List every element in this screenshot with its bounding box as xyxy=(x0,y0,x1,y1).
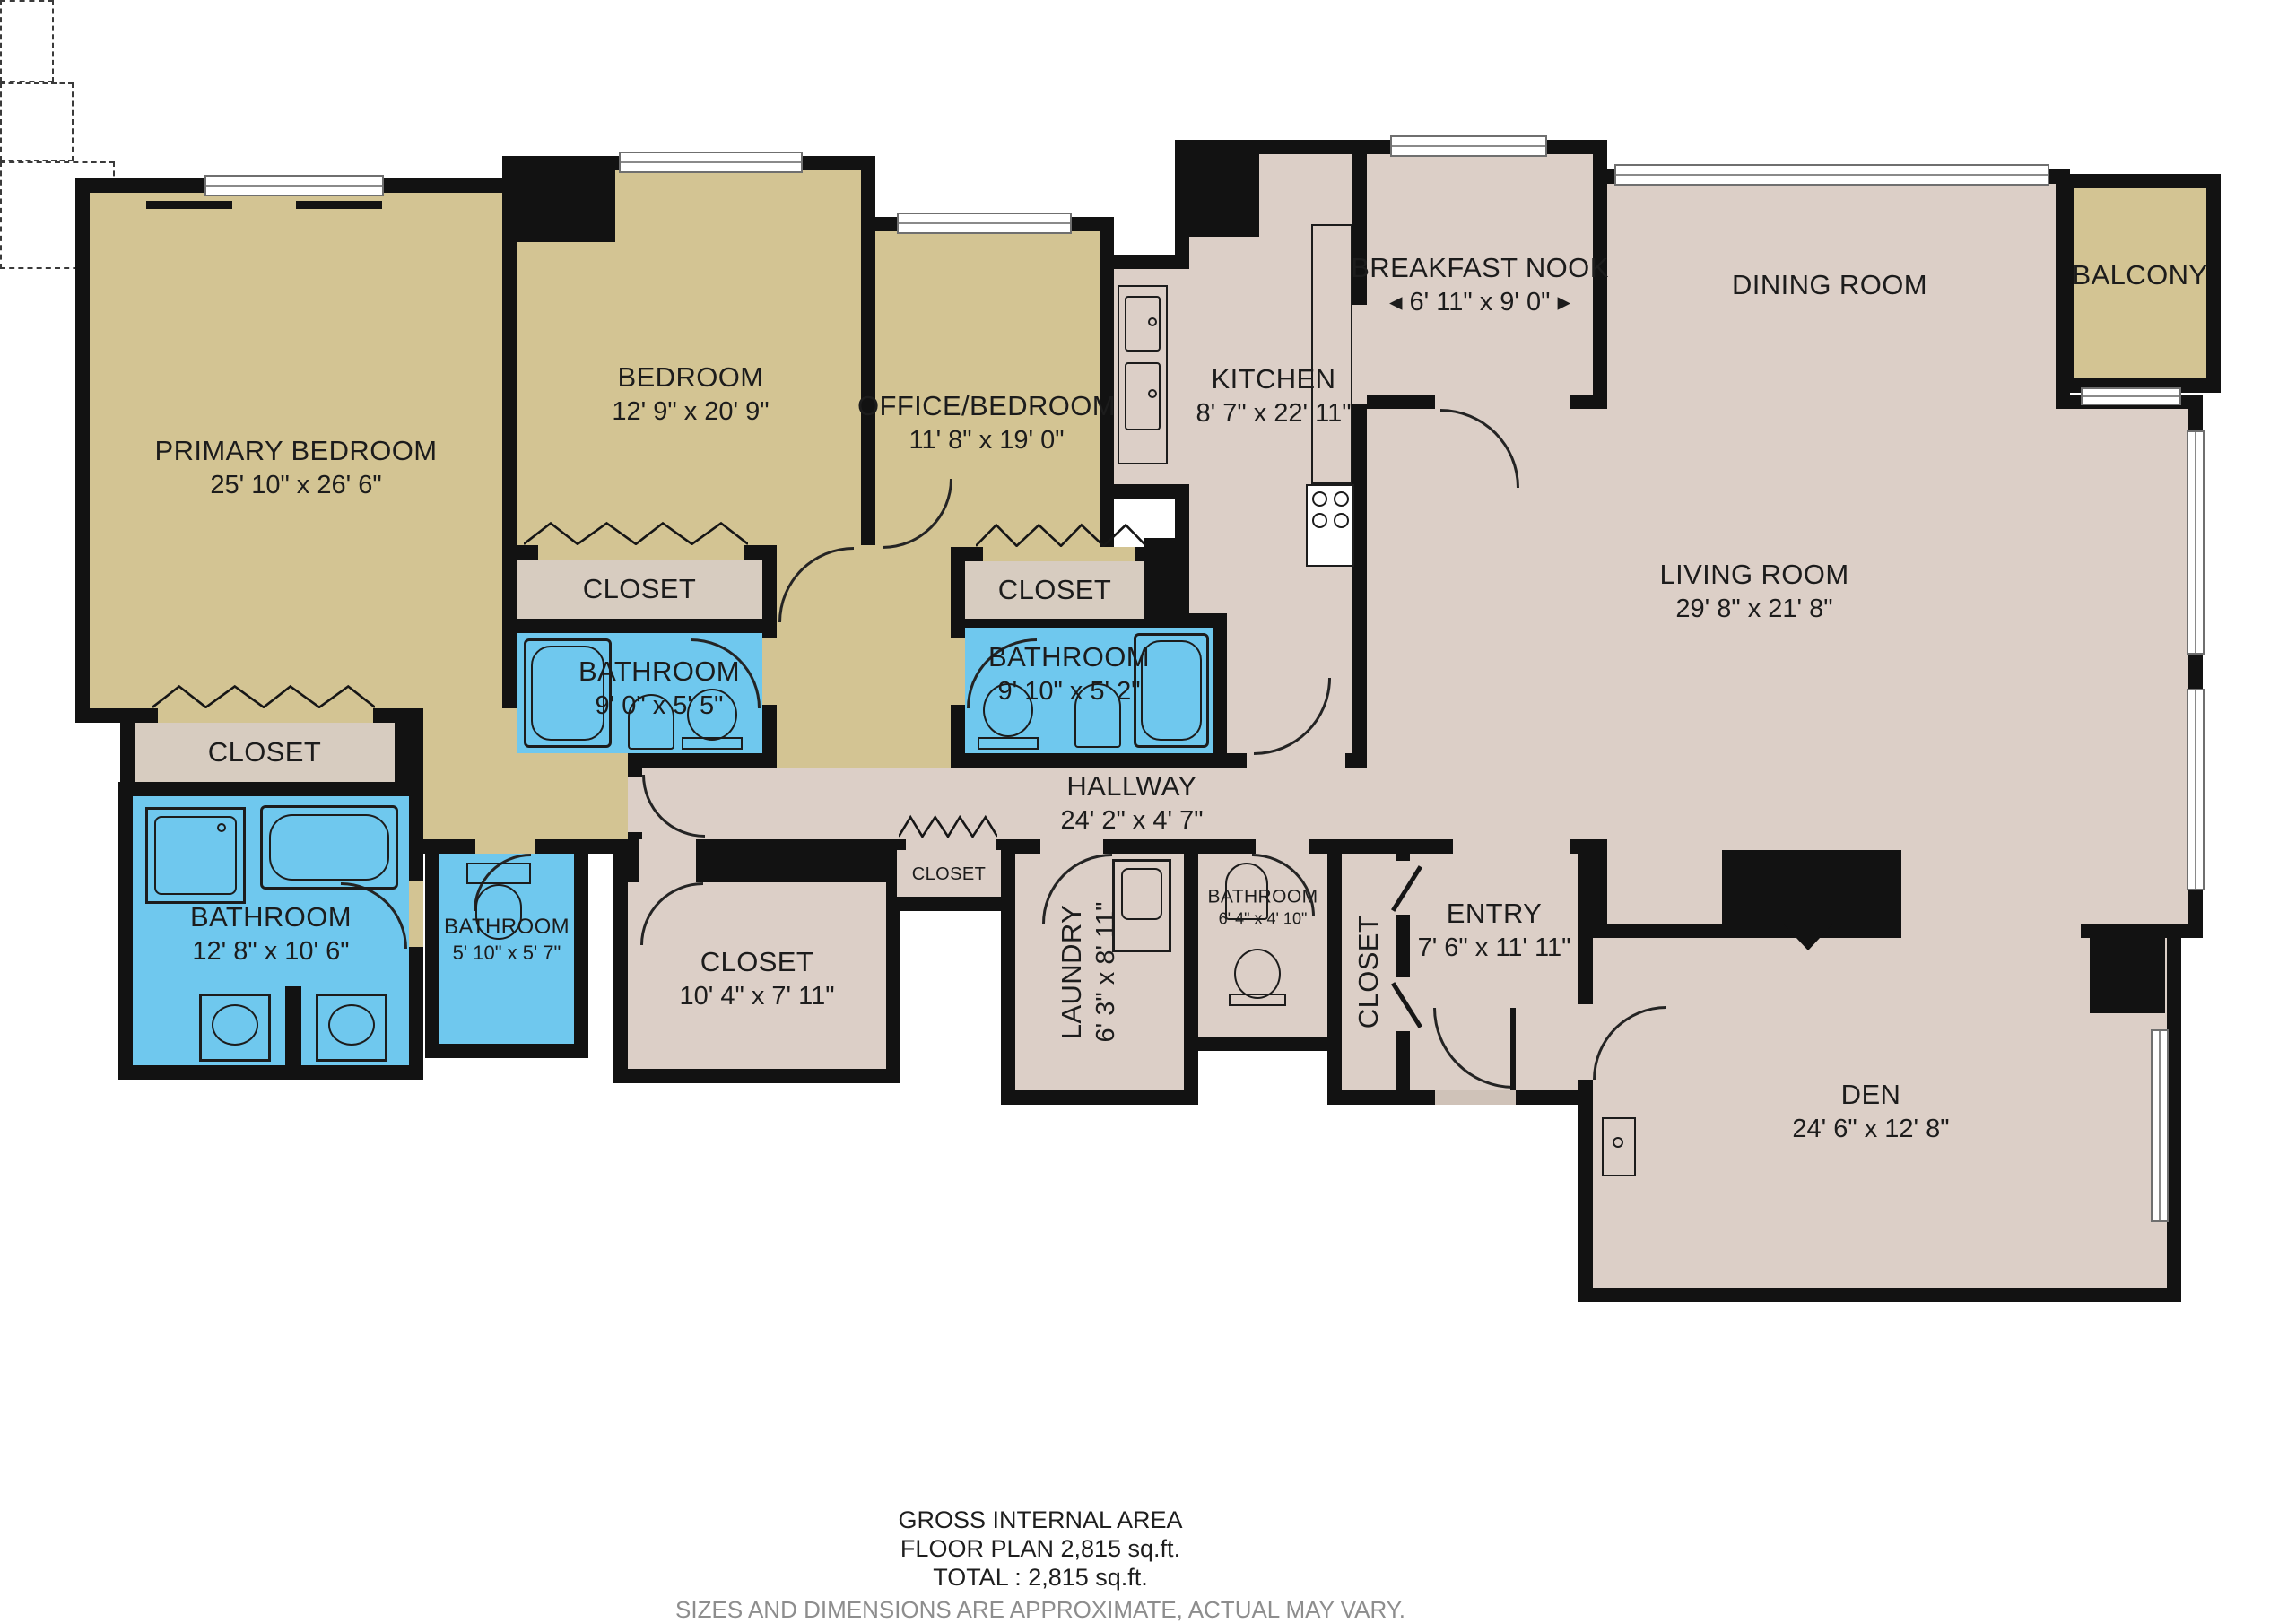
door-opening xyxy=(1247,753,1345,768)
stove-burner-icon xyxy=(1312,491,1327,507)
sink-bowl-icon xyxy=(328,1004,375,1046)
bifold-door-icon xyxy=(899,814,997,838)
toilet-bowl-icon xyxy=(1234,949,1281,999)
stove-burner-icon xyxy=(1334,491,1349,507)
door-opening xyxy=(1578,1004,1593,1080)
stove-burner-icon xyxy=(1334,513,1349,528)
window xyxy=(2151,1029,2169,1222)
room-label-office-bathroom: BATHROOM 9' 10" x 5' 2" xyxy=(988,639,1150,709)
footer-gross-area: GROSS INTERNAL AREA xyxy=(898,1506,1182,1534)
shower-drain-icon xyxy=(217,823,226,832)
room-label-bedroom-bathroom: BATHROOM 9' 0" x 5' 5" xyxy=(578,654,740,724)
room-label-kitchen: KITCHEN 8' 7" x 22' 11" xyxy=(1196,361,1351,431)
closet-opening xyxy=(983,547,1135,561)
wall-mass xyxy=(1189,154,1259,237)
room-label-office-closet: CLOSET xyxy=(998,572,1111,608)
door-opening xyxy=(951,638,965,705)
sliding-door-bar xyxy=(296,201,382,209)
door-opening xyxy=(639,839,696,882)
toilet-tank-icon xyxy=(466,863,531,884)
bifold-door-icon xyxy=(152,683,375,708)
window-band xyxy=(1614,164,2049,186)
window xyxy=(897,213,1072,234)
window xyxy=(2187,430,2205,655)
front-door-leaf xyxy=(1510,1008,1516,1090)
fridge-dashed-icon xyxy=(0,82,74,161)
bathtub-basin-icon xyxy=(1141,640,1202,741)
room-label-primary-bedroom: PRIMARY BEDROOM 25' 10" x 26' 6" xyxy=(155,433,438,503)
room-label-small-bathroom: BATHROOM 5' 10" x 5' 7" xyxy=(444,913,570,967)
sliding-door-bar xyxy=(146,201,232,209)
room-label-den: DEN 24' 6" x 12' 8" xyxy=(1792,1077,1949,1147)
dishwasher-dashed-icon xyxy=(0,0,54,82)
wall-mass xyxy=(2090,938,2165,1013)
room-label-entry: ENTRY 7' 6" x 11' 11" xyxy=(1418,896,1571,966)
room-label-primary-closet: CLOSET xyxy=(208,734,321,770)
room-label-balcony: BALCONY xyxy=(2073,257,2208,293)
window xyxy=(1390,135,1547,157)
stove-burner-icon xyxy=(1312,513,1327,528)
window xyxy=(619,152,803,173)
footer-total-area: TOTAL : 2,815 sq.ft. xyxy=(933,1564,1148,1592)
door-opening xyxy=(762,638,777,705)
wall-mass xyxy=(517,170,615,242)
door-opening xyxy=(1435,395,1570,409)
door-opening xyxy=(1040,839,1103,854)
window xyxy=(2187,689,2205,890)
closet-opening xyxy=(538,545,744,560)
room-label-entry-closet: CLOSET xyxy=(1351,916,1387,1028)
faucet-icon xyxy=(1148,317,1157,326)
room-label-living: LIVING ROOM 29' 8" x 21' 8" xyxy=(1659,557,1848,627)
bathtub-basin-icon xyxy=(269,814,389,881)
toilet-tank-icon xyxy=(978,737,1039,750)
window xyxy=(204,175,384,196)
room-label-dining: DINING ROOM xyxy=(1732,267,1927,303)
room-label-office-bedroom: OFFICE/BEDROOM 11' 8" x 19' 0" xyxy=(857,388,1116,458)
room-label-laundry: LAUNDRY 6' 3" x 8' 11" xyxy=(1054,902,1124,1043)
balcony-slider xyxy=(2081,387,2181,405)
closet-opening xyxy=(158,708,373,723)
room-label-walkin-closet: CLOSET 10' 4" x 7' 11" xyxy=(679,944,834,1014)
kitchen-counter xyxy=(1311,224,1352,484)
room-label-powder-bathroom: BATHROOM 6' 4" x 4' 10" xyxy=(1208,885,1318,931)
room-label-primary-bathroom: BATHROOM 12' 8" x 10' 6" xyxy=(190,899,352,969)
door-opening xyxy=(475,839,535,854)
washer-door-icon xyxy=(1121,868,1162,920)
room-label-breakfast-nook: BREAKFAST NOOK ◂ 6' 11" x 9' 0" ▸ xyxy=(1351,250,1609,320)
toilet-tank-icon xyxy=(682,737,743,750)
closet-opening xyxy=(906,839,996,854)
bifold-door-icon xyxy=(976,522,1146,547)
faucet-icon xyxy=(1613,1137,1623,1148)
door-opening xyxy=(861,547,875,619)
toilet-tank-icon xyxy=(1229,994,1286,1006)
media-wall xyxy=(1722,850,1901,924)
room-label-hallway: HALLWAY 24' 2" x 4' 7" xyxy=(1060,768,1203,838)
door-opening xyxy=(1256,839,1309,854)
footer-floor-plan-area: FLOOR PLAN 2,815 sq.ft. xyxy=(900,1535,1180,1563)
door-opening xyxy=(628,777,642,832)
footer-disclaimer: SIZES AND DIMENSIONS ARE APPROXIMATE, AC… xyxy=(675,1596,1405,1623)
sink-divider-wall xyxy=(285,986,301,1065)
floor-plan: PRIMARY BEDROOM 25' 10" x 26' 6" BEDROOM… xyxy=(0,0,2296,1623)
room-label-hall-closet: CLOSET xyxy=(912,863,986,886)
door-opening xyxy=(879,547,942,561)
room-label-bedroom: BEDROOM 12' 9" x 20' 9" xyxy=(612,360,769,430)
room-label-bedroom-closet: CLOSET xyxy=(583,571,696,607)
sink-bowl-icon xyxy=(212,1004,258,1046)
bifold-door-icon xyxy=(524,520,748,545)
front-door-sill xyxy=(1435,1090,1516,1105)
media-wall-point xyxy=(1783,924,1833,950)
faucet-icon xyxy=(1148,389,1157,398)
door-opening xyxy=(1453,839,1570,854)
room-flow-opening xyxy=(1901,924,2081,938)
door-opening xyxy=(409,881,423,947)
